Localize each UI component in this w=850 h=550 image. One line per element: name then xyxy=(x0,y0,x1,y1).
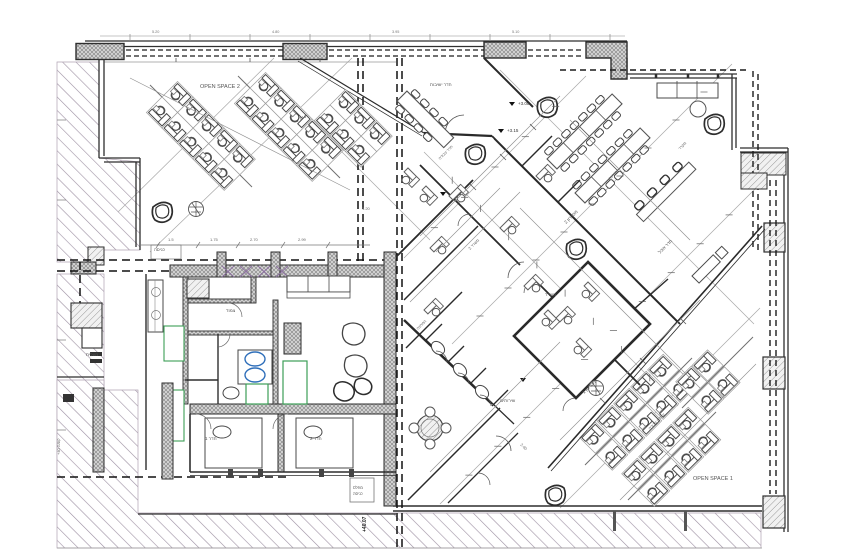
svg-text:+3.15: +3.15 xyxy=(507,128,519,133)
svg-text:צמוד: צמוד xyxy=(226,308,236,313)
svg-text:5.20: 5.20 xyxy=(152,30,159,34)
svg-text:1.20: 1.20 xyxy=(362,206,371,211)
svg-text:כניסה: כניסה xyxy=(353,491,363,496)
svg-text:חדר 1: חדר 1 xyxy=(205,436,217,441)
svg-text:1.5: 1.5 xyxy=(168,237,174,242)
svg-text:OPEN SPACE 2: OPEN SPACE 2 xyxy=(200,84,240,90)
svg-text:5.10: 5.10 xyxy=(512,30,519,34)
svg-text:4.80: 4.80 xyxy=(272,30,279,34)
svg-text:מעלית: מעלית xyxy=(86,352,98,357)
svg-text:+3.08: +3.08 xyxy=(518,101,530,106)
svg-text:2.99: 2.99 xyxy=(298,237,307,242)
svg-text:שירותים: שירותים xyxy=(500,398,516,403)
svg-text:3.95: 3.95 xyxy=(392,30,399,34)
svg-text:2.70: 2.70 xyxy=(250,237,259,242)
svg-text:OPEN SPACE 1: OPEN SPACE 1 xyxy=(693,476,733,482)
svg-text:חדר ישיבות: חדר ישיבות xyxy=(430,82,452,87)
svg-text:מפלס: מפלס xyxy=(353,485,363,490)
svg-text:כניסה: כניסה xyxy=(154,247,166,252)
svg-text:משרד: משרד xyxy=(545,292,556,297)
svg-text:1.75: 1.75 xyxy=(210,237,219,242)
svg-text:+40 קומה: +40 קומה xyxy=(56,438,61,455)
svg-text:+40.07: +40.07 xyxy=(362,516,368,532)
svg-text:חדר 2: חדר 2 xyxy=(310,436,322,441)
